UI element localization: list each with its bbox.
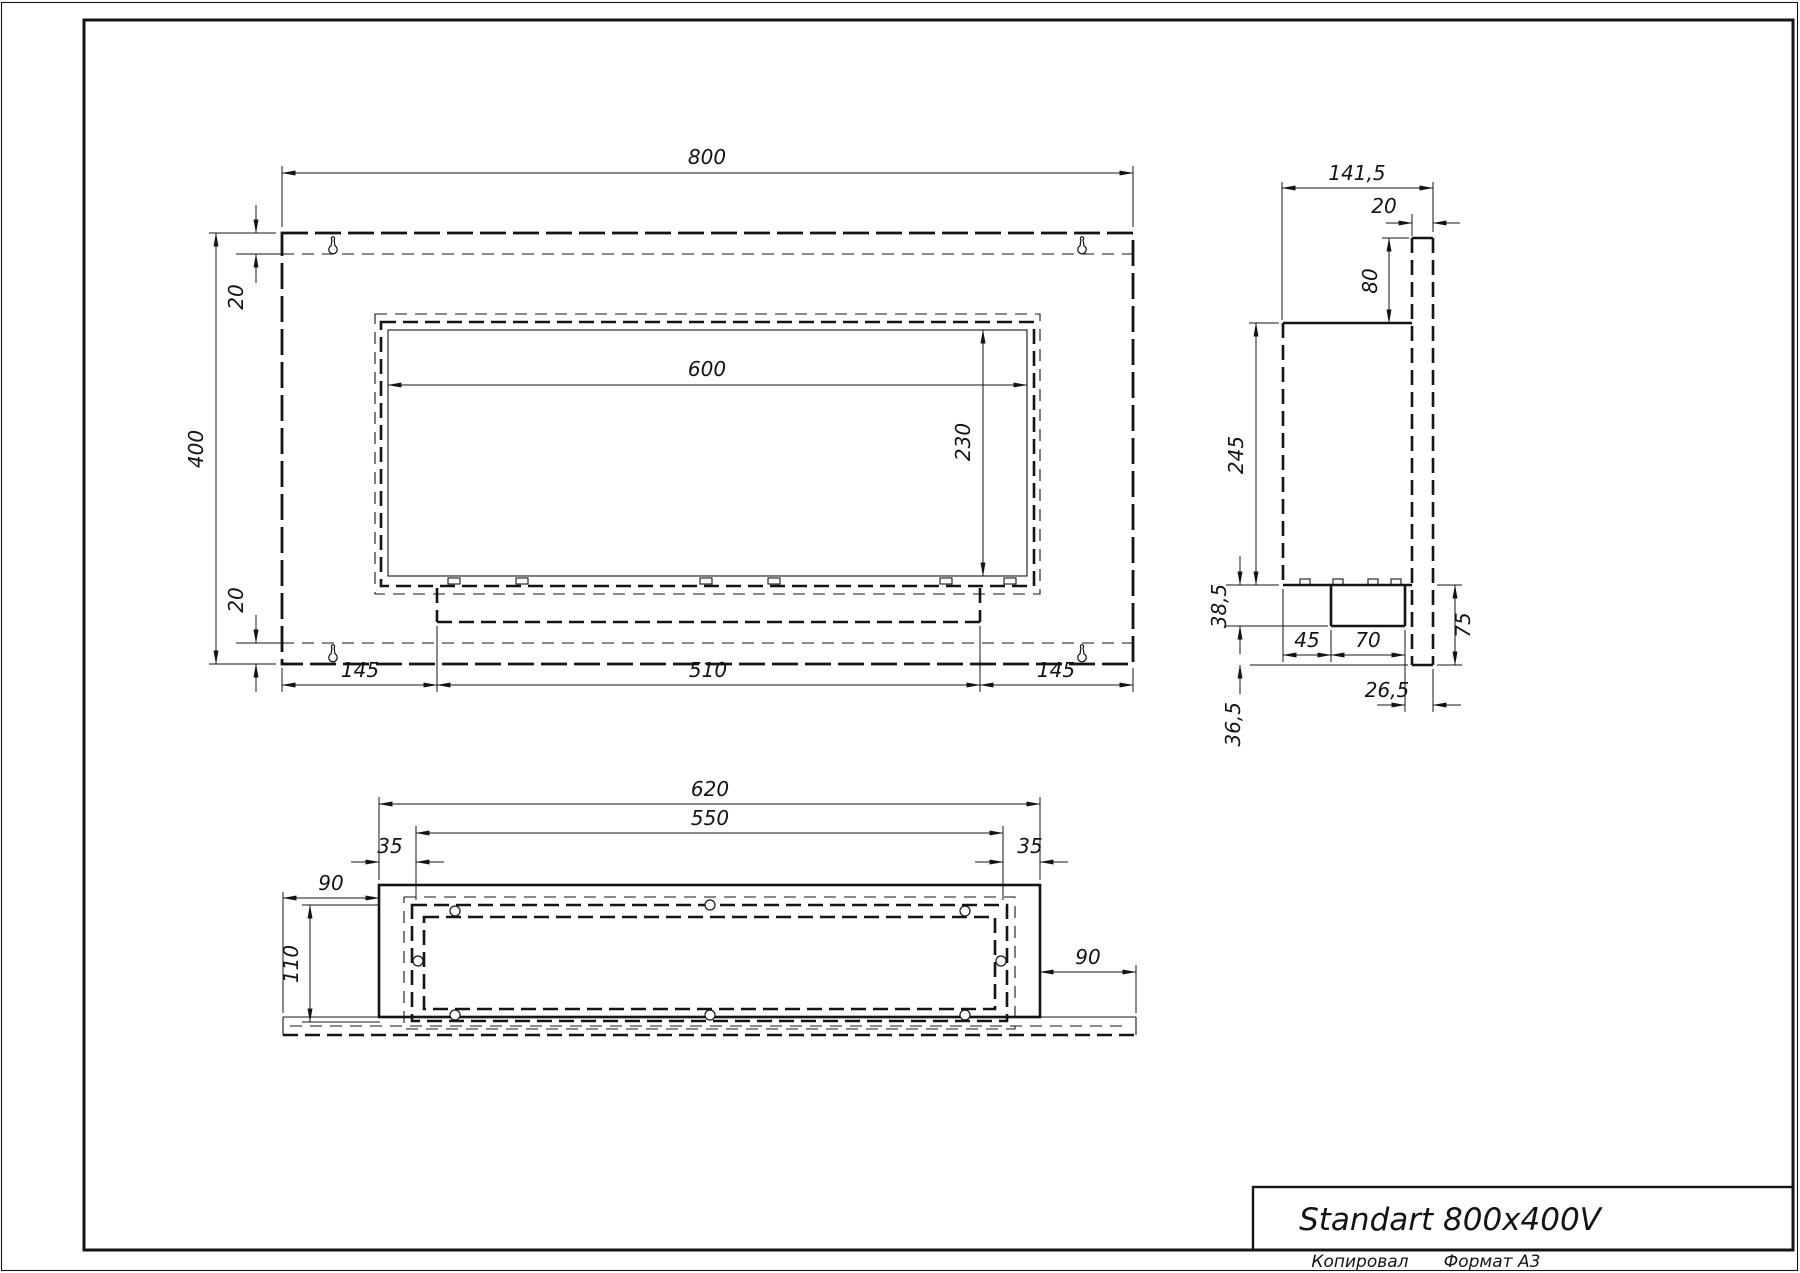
svg-text:80: 80	[1358, 268, 1382, 293]
svg-text:75: 75	[1451, 612, 1475, 637]
svg-text:145: 145	[341, 658, 379, 682]
svg-text:245: 245	[1224, 436, 1248, 474]
drawing-title: Standart 800x400V	[1299, 1202, 1604, 1238]
svg-text:26,5: 26,5	[1365, 678, 1410, 702]
copied-label: Копировал	[1311, 1252, 1408, 1272]
svg-text:20: 20	[224, 284, 248, 309]
technical-drawing: 800 400 20 20 600	[0, 0, 1800, 1273]
svg-text:141,5: 141,5	[1328, 161, 1385, 185]
svg-text:550: 550	[691, 806, 729, 830]
svg-text:20: 20	[1371, 194, 1396, 218]
sheet-background	[0, 0, 1800, 1273]
svg-text:800: 800	[688, 145, 726, 169]
svg-text:145: 145	[1037, 658, 1075, 682]
svg-text:70: 70	[1355, 628, 1380, 652]
svg-text:400: 400	[184, 430, 208, 468]
svg-text:38,5: 38,5	[1207, 584, 1231, 629]
svg-text:620: 620	[691, 777, 729, 801]
svg-text:90: 90	[318, 871, 343, 895]
drawing-sheet: 800 400 20 20 600	[0, 0, 1800, 1273]
svg-text:90: 90	[1075, 945, 1100, 969]
svg-text:600: 600	[688, 357, 726, 381]
format-label: Формат А3	[1444, 1252, 1541, 1272]
svg-text:35: 35	[377, 834, 402, 858]
svg-text:110: 110	[279, 945, 303, 983]
svg-text:45: 45	[1294, 628, 1319, 652]
svg-text:230: 230	[951, 423, 975, 461]
svg-text:36,5: 36,5	[1221, 702, 1245, 747]
svg-text:20: 20	[224, 587, 248, 612]
svg-text:35: 35	[1017, 834, 1042, 858]
svg-text:510: 510	[689, 658, 727, 682]
